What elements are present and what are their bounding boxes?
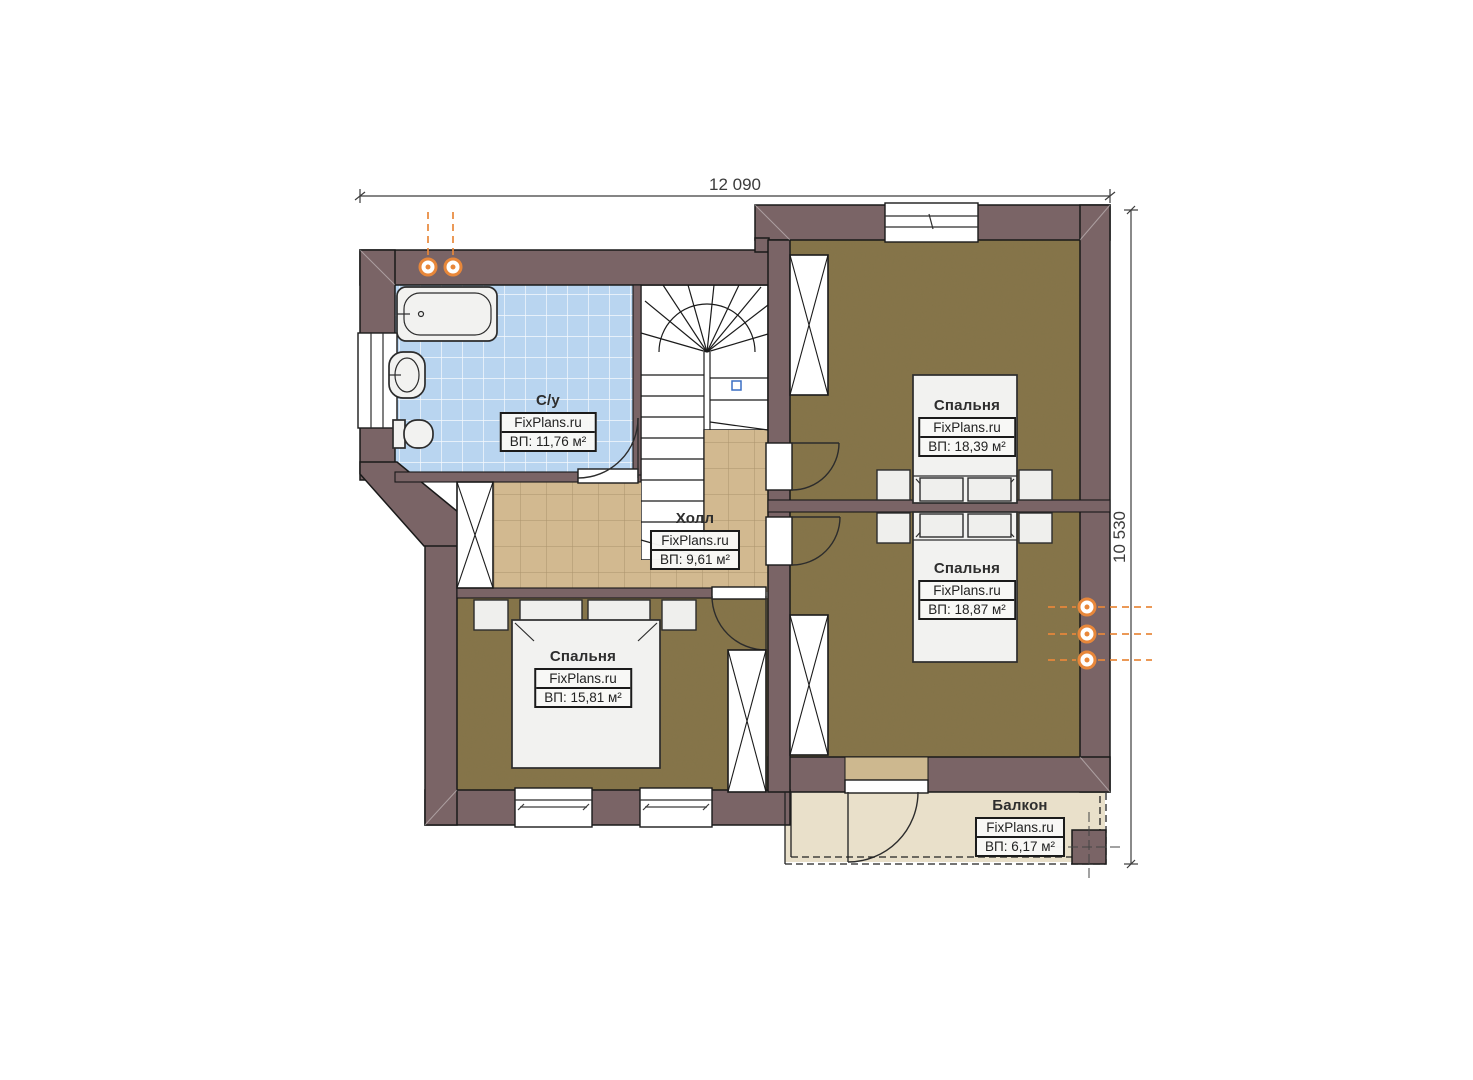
room-area: ВП: 18,87 м²: [920, 599, 1014, 618]
room-label-bathroom: С/у FixPlans.ru ВП: 11,76 м²: [500, 392, 597, 452]
toilet: [393, 420, 433, 448]
room-info-box: FixPlans.ru ВП: 18,87 м²: [918, 580, 1016, 620]
room-brand: FixPlans.ru: [977, 819, 1063, 836]
heating-pipe: [420, 212, 436, 275]
vent-shaft: [728, 650, 766, 792]
nightstand: [877, 470, 910, 500]
pillow: [968, 478, 1011, 501]
room-area: ВП: 9,61 м²: [652, 549, 738, 568]
room-info-box: FixPlans.ru ВП: 15,81 м²: [534, 668, 632, 708]
room-brand: FixPlans.ru: [652, 532, 738, 549]
wall: [1080, 205, 1110, 792]
vent-shaft: [457, 482, 493, 588]
pillow: [920, 478, 963, 501]
room-info-box: FixPlans.ru ВП: 18,39 м²: [918, 417, 1016, 457]
wall-bathroom-east: [633, 285, 641, 475]
wall: [425, 790, 790, 825]
room-name: Балкон: [975, 797, 1065, 814]
nightstand: [1019, 513, 1052, 543]
wall: [425, 515, 457, 825]
room-label-bedroom-left: Спальня FixPlans.ru ВП: 15,81 м²: [534, 648, 632, 708]
nightstand: [877, 513, 910, 543]
nightstand: [474, 600, 508, 630]
room-label-bedroom-top-right: Спальня FixPlans.ru ВП: 18,39 м²: [918, 397, 1016, 457]
sink: [389, 352, 425, 398]
room-area: ВП: 18,39 м²: [920, 436, 1014, 455]
dimension-top: 12 090: [355, 175, 1115, 203]
dimension-height-label: 10 530: [1110, 511, 1129, 563]
room-area: ВП: 6,17 м²: [977, 836, 1063, 855]
wall: [768, 757, 1110, 792]
window: [885, 203, 978, 242]
room-brand: FixPlans.ru: [920, 419, 1014, 436]
dimension-right: 10 530: [1110, 206, 1138, 868]
room-name: Спальня: [918, 560, 1016, 577]
room-label-balcony: Балкон FixPlans.ru ВП: 6,17 м²: [975, 797, 1065, 857]
pillow: [588, 600, 650, 622]
room-brand: FixPlans.ru: [920, 582, 1014, 599]
window: [515, 788, 592, 827]
vent-shaft: [790, 615, 828, 755]
pillow: [520, 600, 582, 622]
pillow: [920, 514, 963, 537]
room-info-box: FixPlans.ru ВП: 9,61 м²: [650, 530, 740, 570]
room-label-hall: Холл FixPlans.ru ВП: 9,61 м²: [650, 510, 740, 570]
room-name: Холл: [650, 510, 740, 527]
heating-pipe: [445, 212, 461, 275]
wall-hall-south: [457, 588, 712, 598]
floor-plan-canvas: 12 090 10 530 С/у FixPlans.ru ВП: 11,76 …: [0, 0, 1473, 1080]
dimension-width-label: 12 090: [709, 175, 761, 194]
room-info-box: FixPlans.ru ВП: 11,76 м²: [500, 412, 597, 452]
room-name: Спальня: [534, 648, 632, 665]
room-info-box: FixPlans.ru ВП: 6,17 м²: [975, 817, 1065, 857]
window: [640, 788, 712, 827]
wall: [755, 238, 769, 252]
vent-shaft: [790, 255, 828, 395]
room-brand: FixPlans.ru: [502, 414, 595, 431]
room-area: ВП: 15,81 м²: [536, 687, 630, 706]
nightstand: [1019, 470, 1052, 500]
nightstand: [662, 600, 696, 630]
bathtub: [397, 287, 497, 341]
wall-central: [768, 240, 790, 792]
room-name: С/у: [500, 392, 597, 409]
room-brand: FixPlans.ru: [536, 670, 630, 687]
room-area: ВП: 11,76 м²: [502, 431, 595, 450]
room-name: Спальня: [918, 397, 1016, 414]
room-label-bedroom-bottom-right: Спальня FixPlans.ru ВП: 18,87 м²: [918, 560, 1016, 620]
pillow: [968, 514, 1011, 537]
